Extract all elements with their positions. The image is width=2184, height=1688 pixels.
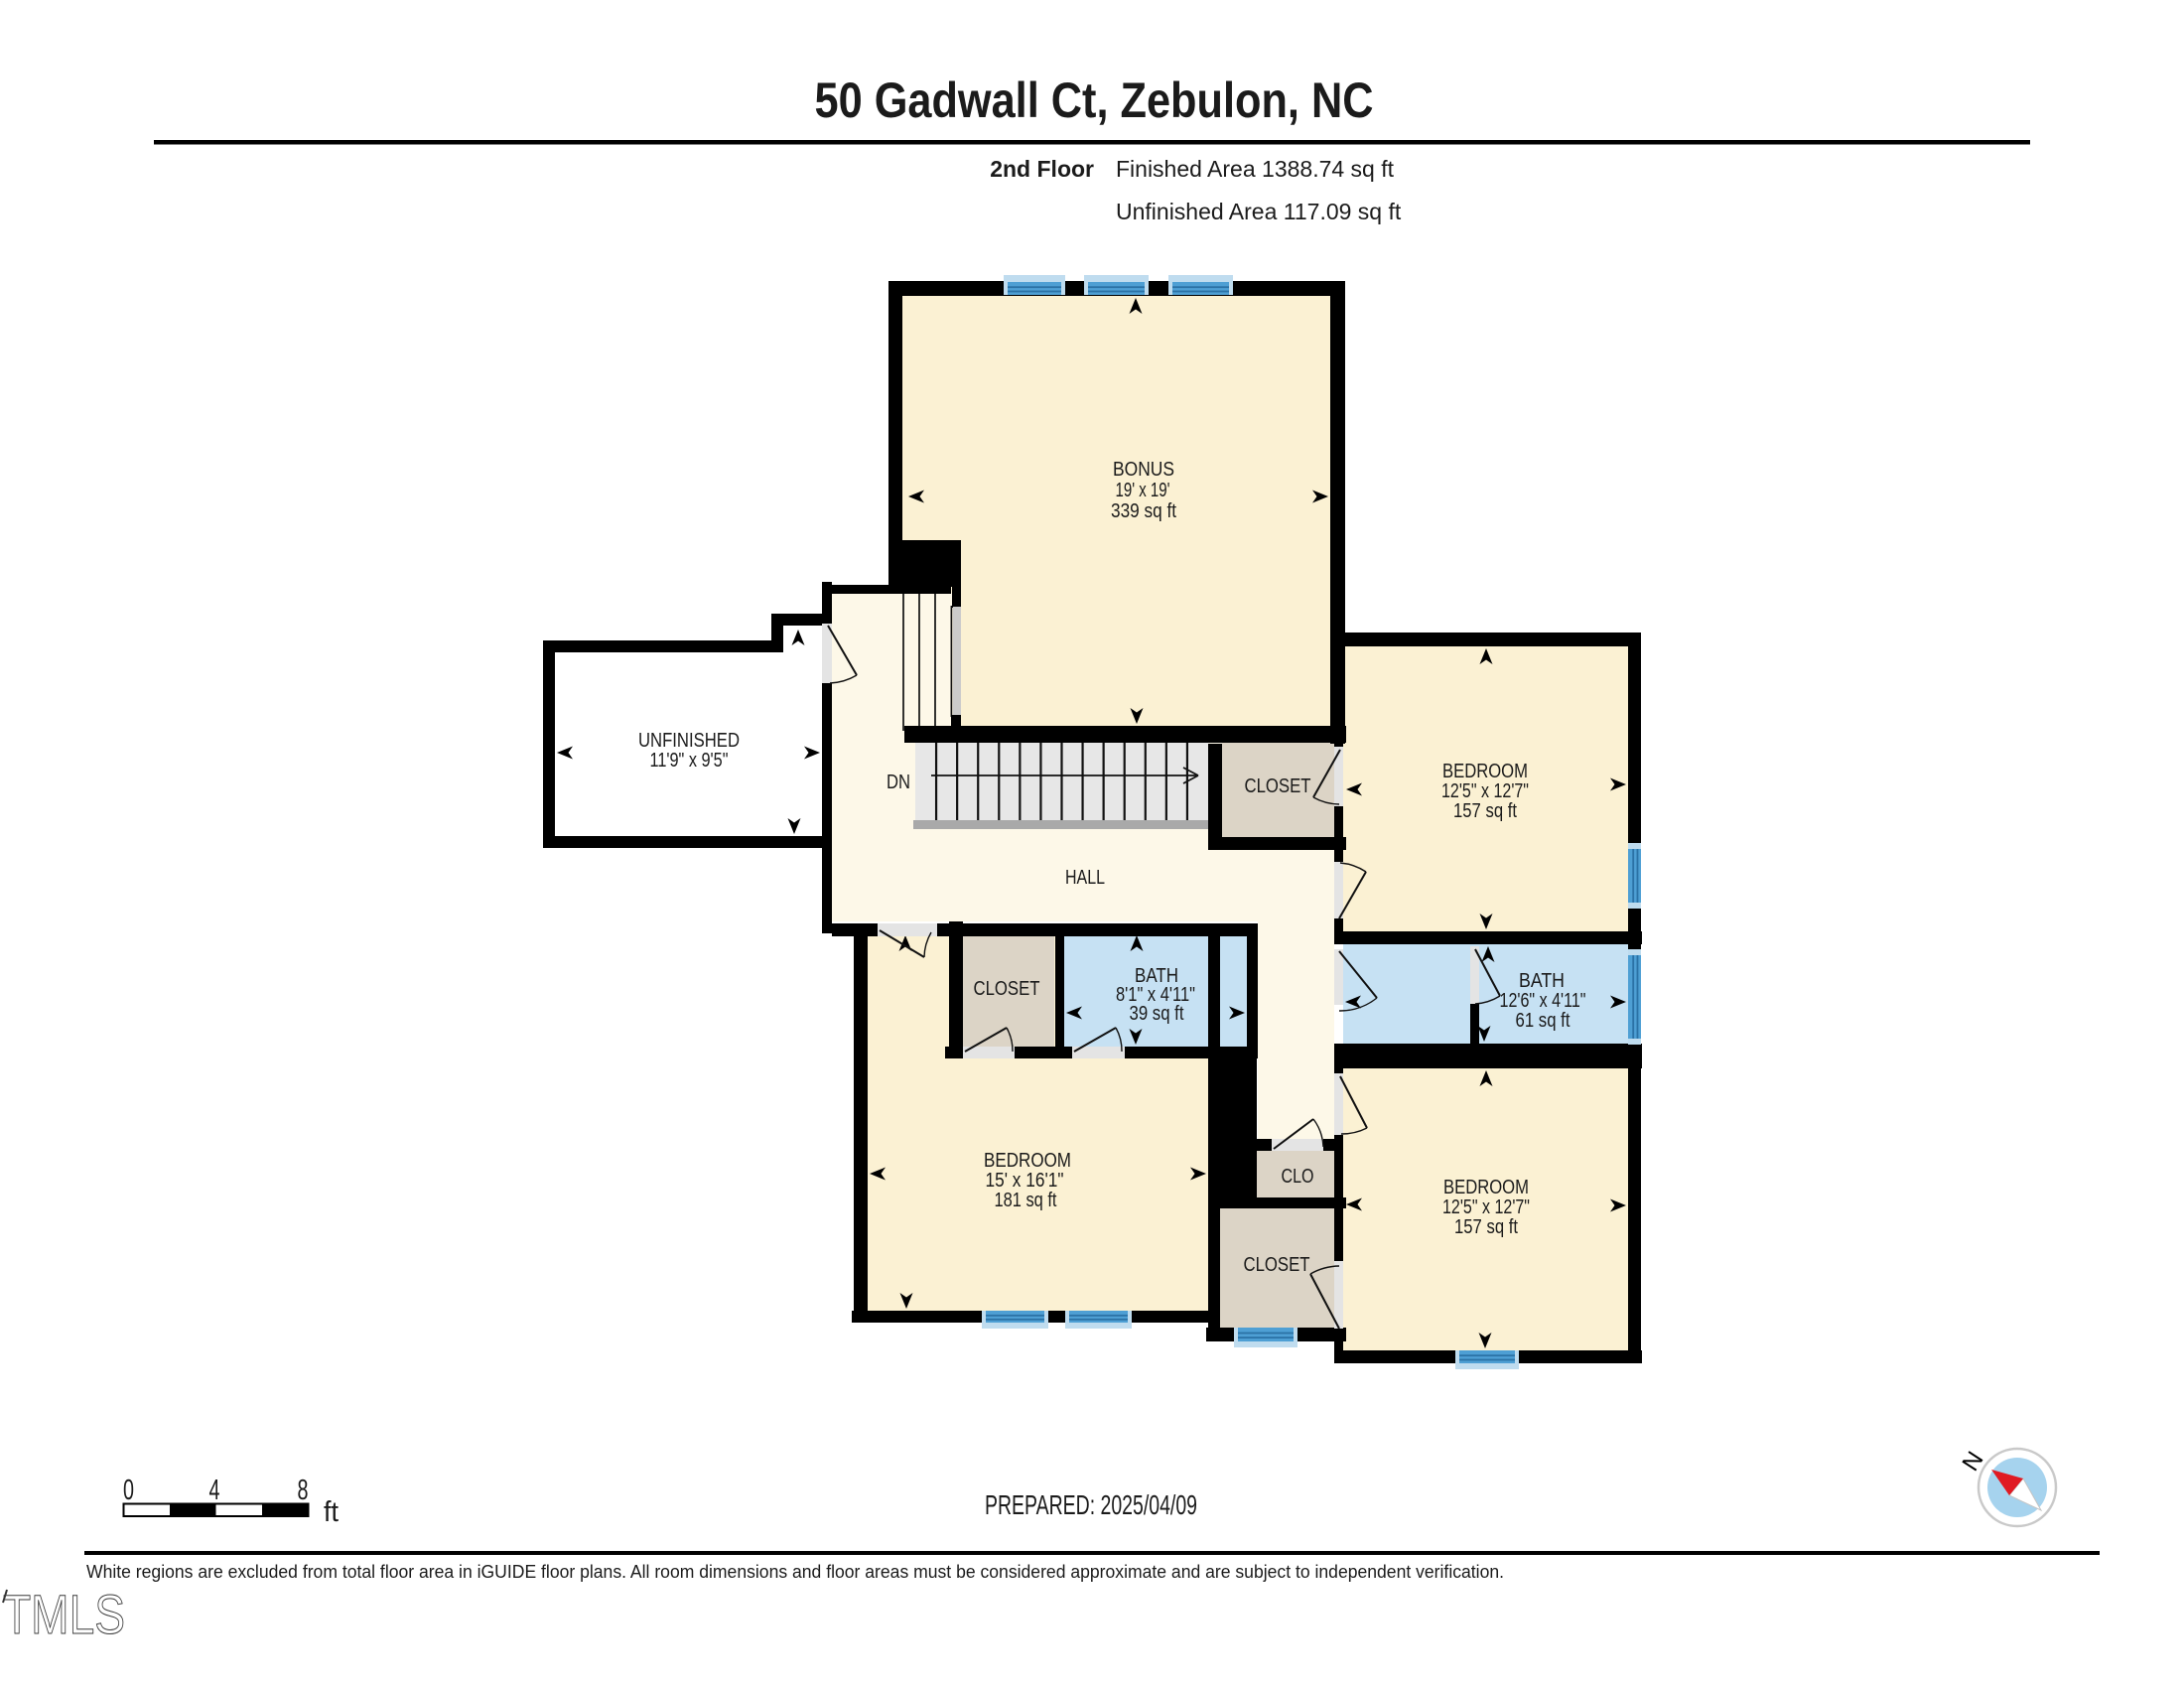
svg-text:339 sq ft: 339 sq ft — [1111, 500, 1176, 522]
svg-text:61 sq ft: 61 sq ft — [1516, 1010, 1570, 1032]
svg-text:BATH: BATH — [1519, 970, 1565, 992]
svg-text:50 Gadwall Ct, Zebulon, NC: 50 Gadwall Ct, Zebulon, NC — [815, 72, 1374, 128]
svg-text:BEDROOM: BEDROOM — [1442, 761, 1528, 782]
svg-text:12'6" x 4'11": 12'6" x 4'11" — [1500, 990, 1586, 1012]
svg-text:2nd Floor: 2nd Floor — [990, 156, 1094, 182]
svg-text:157 sq ft: 157 sq ft — [1454, 1216, 1518, 1238]
svg-text:BONUS: BONUS — [1113, 459, 1174, 481]
svg-text:8: 8 — [298, 1475, 309, 1506]
svg-text:CLOSET: CLOSET — [1245, 775, 1311, 797]
svg-text:CLOSET: CLOSET — [974, 978, 1040, 1000]
svg-text:TMLS: TMLS — [3, 1583, 125, 1645]
svg-text:DN: DN — [887, 772, 910, 793]
svg-text:12'5" x 12'7": 12'5" x 12'7" — [1442, 1196, 1530, 1218]
svg-text:15' x 16'1": 15' x 16'1" — [986, 1170, 1064, 1192]
svg-text:CLOSET: CLOSET — [1244, 1254, 1310, 1276]
svg-text:Finished Area 1388.74 sq ft: Finished Area 1388.74 sq ft — [1116, 156, 1395, 182]
svg-text:White regions are excluded fro: White regions are excluded from total fl… — [86, 1562, 1504, 1582]
svg-text:PREPARED: 2025/04/09: PREPARED: 2025/04/09 — [985, 1489, 1197, 1520]
svg-text:Unfinished Area 117.09 sq ft: Unfinished Area 117.09 sq ft — [1116, 199, 1402, 224]
svg-text:ft: ft — [324, 1496, 339, 1528]
svg-text:4: 4 — [209, 1475, 220, 1506]
svg-text:BEDROOM: BEDROOM — [1443, 1177, 1529, 1198]
svg-text:181 sq ft: 181 sq ft — [995, 1190, 1057, 1211]
svg-text:39 sq ft: 39 sq ft — [1130, 1003, 1184, 1025]
svg-text:157 sq ft: 157 sq ft — [1453, 800, 1517, 822]
svg-text:19' x 19': 19' x 19' — [1116, 480, 1170, 501]
svg-text:BEDROOM: BEDROOM — [984, 1150, 1071, 1172]
svg-text:HALL: HALL — [1065, 867, 1105, 889]
svg-text:CLO: CLO — [1282, 1166, 1314, 1188]
svg-text:11'9" x 9'5": 11'9" x 9'5" — [650, 750, 729, 772]
svg-text:12'5" x 12'7": 12'5" x 12'7" — [1441, 780, 1529, 802]
svg-text:0: 0 — [123, 1475, 134, 1506]
svg-text:UNFINISHED: UNFINISHED — [638, 730, 740, 752]
